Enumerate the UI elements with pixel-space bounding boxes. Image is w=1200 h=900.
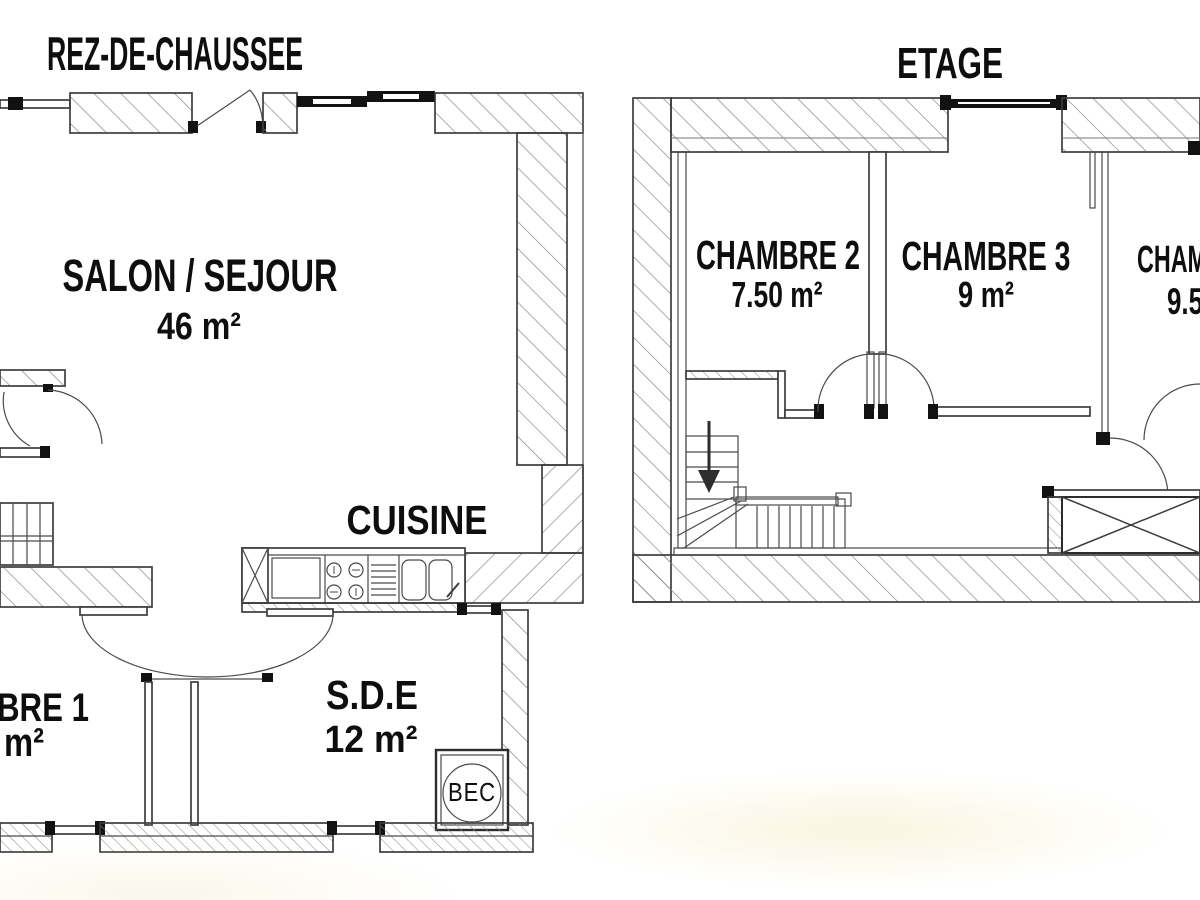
gf-top-window-2 <box>367 91 435 102</box>
floor-plan-canvas: BEC REZ-DE-CHAUSSEE SALON / SEJOUR 46 <box>0 0 1200 900</box>
sde-label: S.D.E <box>326 672 418 718</box>
uf-bedroom-doors <box>814 352 938 419</box>
uf-top-window <box>940 95 1067 110</box>
gf-labels: REZ-DE-CHAUSSEE SALON / SEJOUR 46 m² CUI… <box>0 27 488 765</box>
chambre3-area: 9 m² <box>958 274 1014 315</box>
gf-kitchen-counter <box>242 548 465 612</box>
gf-top-wall <box>0 90 583 133</box>
gf-bottom-wall <box>0 821 533 852</box>
uf-staircase <box>677 421 851 548</box>
chambre1-area-partial: m² <box>4 721 44 765</box>
cuisine-label: CUISINE <box>347 497 488 543</box>
uf-closet <box>1042 486 1200 553</box>
gf-left-doors <box>3 390 102 446</box>
gf-water-heater: BEC <box>436 750 508 830</box>
chambre2-label: CHAMBRE 2 <box>696 232 860 278</box>
ground-floor-plan: BEC REZ-DE-CHAUSSEE SALON / SEJOUR 46 <box>0 27 583 852</box>
chambre3-label: CHAMBRE 3 <box>902 233 1071 279</box>
uf-chambre4-doors <box>1110 384 1200 496</box>
gf-top-window-1 <box>297 96 367 107</box>
floor-plan-document: BEC REZ-DE-CHAUSSEE SALON / SEJOUR 46 <box>0 0 1200 900</box>
kitchen-end-stub <box>242 548 268 603</box>
chambre4-area-partial: 9.5 <box>1167 281 1200 322</box>
ground-floor-title: REZ-DE-CHAUSSEE <box>47 27 303 80</box>
sde-area: 12 m² <box>325 719 418 761</box>
salon-label: SALON / SEJOUR <box>63 250 338 301</box>
water-heater-label: BEC <box>448 777 496 807</box>
upper-floor-plan: ETAGE CHAMBRE 2 7.50 m² CHAMBRE 3 9 m² C… <box>633 39 1200 602</box>
gf-grid-cabinet <box>0 503 53 565</box>
chambre2-area: 7.50 m² <box>732 274 823 315</box>
upper-floor-title: ETAGE <box>897 39 1003 88</box>
gf-hall-arch <box>80 607 333 825</box>
gf-entry-door <box>197 90 263 126</box>
gf-left-side <box>0 370 152 607</box>
chambre4-label-partial: CHAM <box>1137 239 1200 281</box>
uf-labels: ETAGE CHAMBRE 2 7.50 m² CHAMBRE 3 9 m² C… <box>696 39 1200 322</box>
salon-area: 46 m² <box>157 306 241 348</box>
